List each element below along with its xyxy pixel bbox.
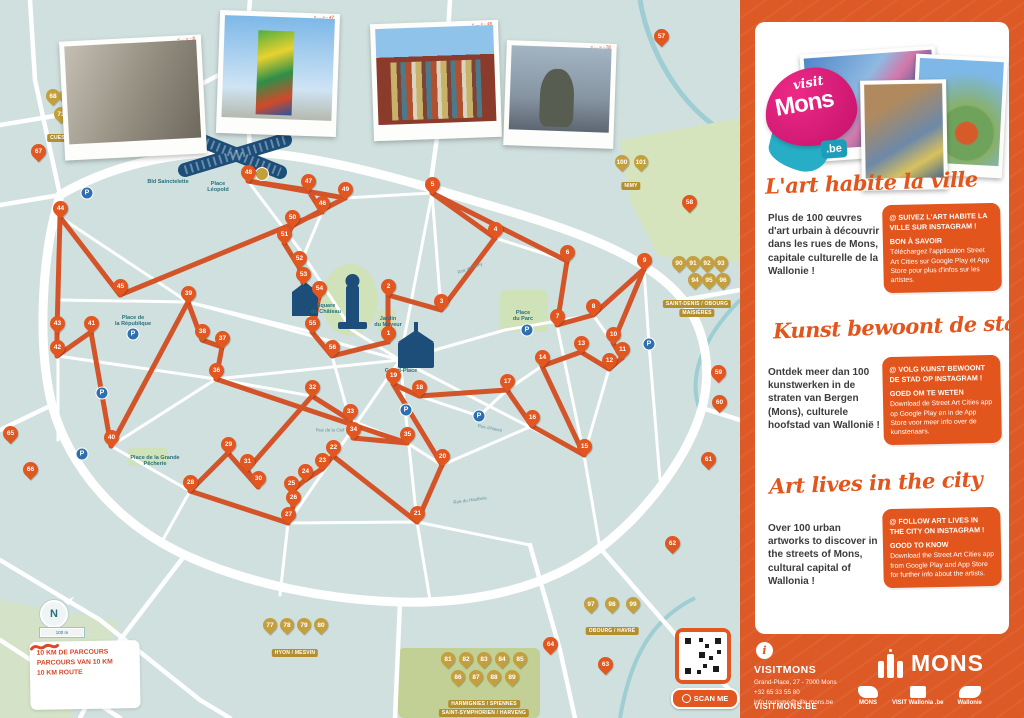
marker-number: 40	[104, 430, 119, 445]
mons-region-logo: MONS	[858, 686, 878, 707]
marker-number: 26	[286, 490, 301, 505]
marker-number: 6	[560, 245, 575, 260]
marker-number: 66	[23, 462, 38, 477]
marker-number: 87	[469, 670, 483, 684]
marker-number: 15	[577, 439, 592, 454]
map-photo-3: « ... » - 45	[370, 20, 502, 141]
compass-north-icon: N	[40, 600, 68, 628]
marker-number: 82	[459, 652, 473, 666]
marker-number: 3	[434, 294, 449, 309]
marker-number: 63	[598, 657, 613, 672]
marker-number: 38	[195, 324, 210, 339]
mons-city-logo: MONS	[878, 648, 984, 678]
marker-number: 55	[305, 316, 320, 331]
parking-icon: P	[81, 187, 94, 200]
marker-number: 44	[53, 201, 68, 216]
village-group-label: OBOURG / HAVRÉ	[586, 627, 639, 635]
marker-number: 17	[500, 374, 515, 389]
marker-number: 94	[688, 273, 702, 287]
footer-website[interactable]: VISITMONS.BE	[754, 702, 817, 711]
parking-icon: P	[473, 410, 486, 423]
marker-number: 49	[338, 182, 353, 197]
marker-number: 27	[281, 507, 296, 522]
marker-number: 2	[381, 279, 396, 294]
street-art-map-poster: « ... » - 6 « ... » - 47 « ... » - 45 « …	[0, 0, 1024, 718]
village-group-label: SAINT-DENIS / OBOURG	[663, 300, 731, 308]
marker-number: 62	[665, 536, 680, 551]
map-photo-4: « ... » - 78	[503, 40, 617, 149]
marker-number: 93	[714, 256, 728, 270]
marker-number: 21	[410, 506, 425, 521]
marker-number: 9	[637, 253, 652, 268]
village-group-label: NIMY	[621, 182, 640, 190]
marker-number: 13	[574, 336, 589, 351]
city-map: « ... » - 6 « ... » - 47 « ... » - 45 « …	[0, 0, 740, 718]
marker-number: 50	[285, 210, 300, 225]
marker-number: 48	[241, 165, 256, 180]
marker-number: 53	[296, 267, 311, 282]
marker-number: 54	[312, 281, 327, 296]
route-squiggle-icon	[29, 641, 59, 652]
marker-number: 79	[297, 618, 311, 632]
mural-photo-figure	[509, 45, 612, 132]
visitmons-logo: visit Mons .be	[759, 62, 867, 174]
instagram-line-nl: @ Volg kunst bewoont de stad op Instagra…	[889, 363, 993, 385]
info-icon: i	[756, 642, 773, 659]
marker-number: 95	[702, 273, 716, 287]
street-label: Rue de la Clef	[316, 428, 345, 433]
marker-number: 47	[301, 174, 316, 189]
mural-photo-books	[375, 25, 496, 125]
marker-number: 16	[525, 410, 540, 425]
village-group-label: HARMIGNIES / SPIENNES	[448, 700, 520, 708]
marker-number: 34	[346, 422, 361, 437]
visit-wallonia-logo: VISIT Wallonia .be	[892, 686, 943, 707]
marker-number: 39	[181, 286, 196, 301]
marker-number: 51	[277, 227, 292, 242]
instagram-line-fr: @ Suivez l'art habite la ville sur Insta…	[889, 211, 993, 233]
heading-en: Art lives in the city	[769, 466, 983, 498]
marker-number: 19	[386, 368, 401, 383]
marker-number: 30	[251, 471, 266, 486]
marker-number: 100	[615, 155, 629, 169]
marker-number: 37	[215, 331, 230, 346]
marker-number: 59	[711, 365, 726, 380]
map-photo-1: « ... » - 6	[59, 34, 207, 160]
body-en: Over 100 urban artworks to discover in t…	[768, 522, 880, 588]
scan-me-button[interactable]: SCAN ME	[671, 688, 739, 709]
village-group-label: HYON / MESVIN	[272, 649, 318, 657]
footer-address: Grand-Place, 27 - 7000 Mons	[754, 678, 837, 688]
logo-be-tag: .be	[820, 139, 847, 159]
marker-number: 58	[682, 195, 697, 210]
footer-phone: +32 65 33 55 80	[754, 688, 837, 698]
marker-number: 60	[712, 395, 727, 410]
marker-number: 1	[381, 326, 396, 341]
footer-brand: VISITMONS	[754, 664, 816, 676]
marker-number: 89	[505, 670, 519, 684]
marker-number: 81	[441, 652, 455, 666]
info-card: visit Mons .be L'art habite la ville Plu…	[755, 22, 1009, 634]
callout-fr: @ Suivez l'art habite la ville sur Insta…	[882, 203, 1002, 294]
marker-number: 23	[315, 453, 330, 468]
station-gold-badge	[255, 167, 269, 181]
village-group-label: SAINT-SYMPHORIEN / HARVENG	[439, 709, 529, 717]
marker-number: 14	[535, 350, 550, 365]
marker-number: 20	[435, 449, 450, 464]
photo-caption: « ... » - 6	[177, 36, 195, 42]
marker-number: 61	[701, 452, 716, 467]
marker-number: 35	[400, 427, 415, 442]
village-group-label: MAISIÈRES	[679, 309, 714, 317]
map-scale-bar: 100 m	[40, 628, 84, 637]
callout-en: @ Follow art lives in the city on Instag…	[882, 507, 1002, 588]
marker-number: 86	[451, 670, 465, 684]
marker-number: 80	[314, 618, 328, 632]
partner-logos: MONS VISIT Wallonia .be Wallonie	[858, 686, 982, 707]
parking-icon: P	[127, 328, 140, 341]
place-label: Square du Château	[311, 303, 341, 315]
parking-icon: P	[521, 324, 534, 337]
marker-number: 57	[654, 29, 669, 44]
marker-number: 52	[292, 251, 307, 266]
marker-number: 92	[700, 256, 714, 270]
marker-number: 7	[550, 309, 565, 324]
marker-number: 5	[425, 177, 440, 192]
marker-number: 12	[602, 353, 617, 368]
info-panel: visit Mons .be L'art habite la ville Plu…	[740, 0, 1024, 718]
marker-number: 96	[716, 273, 730, 287]
marker-number: 97	[584, 597, 598, 611]
instagram-line-en: @ Follow art lives in the city on Instag…	[889, 515, 993, 537]
marker-number: 10	[606, 327, 621, 342]
parking-icon: P	[76, 448, 89, 461]
parking-icon: P	[96, 387, 109, 400]
map-legend: 10 KM DE PARCOURS PARCOURS VAN 10 KM 10 …	[29, 640, 140, 710]
marker-number: 29	[221, 437, 236, 452]
mural-photo-tower	[221, 15, 334, 121]
marker-number: 18	[412, 380, 427, 395]
marker-number: 101	[634, 155, 648, 169]
marker-number: 28	[183, 475, 198, 490]
marker-number: 91	[686, 256, 700, 270]
callout-nl: @ Volg kunst bewoont de stad op Instagra…	[882, 355, 1002, 446]
marker-number: 90	[672, 256, 686, 270]
marker-number: 84	[495, 652, 509, 666]
marker-number: 64	[543, 637, 558, 652]
marker-number: 4	[488, 222, 503, 237]
marker-number: 65	[3, 426, 18, 441]
place-label: Place de la Grande Pêcherie	[130, 455, 179, 467]
marker-number: 42	[50, 340, 65, 355]
scan-me-label: SCAN ME	[694, 694, 729, 703]
marker-number: 45	[113, 279, 128, 294]
place-label: Place du Parc	[513, 310, 533, 322]
place-label: Place de la République	[115, 315, 151, 327]
marker-number: 67	[31, 144, 46, 159]
marker-number: 43	[50, 316, 65, 331]
marker-number: 56	[325, 340, 340, 355]
marker-number: 98	[605, 597, 619, 611]
marker-number: 8	[586, 299, 601, 314]
marker-number: 85	[513, 652, 527, 666]
wallonia-tourism-logo: Wallonie	[957, 686, 981, 707]
marker-number: 25	[284, 476, 299, 491]
marker-number: 31	[240, 454, 255, 469]
marker-number: 78	[280, 618, 294, 632]
place-label: Bld Sainctelette	[147, 179, 188, 185]
heading-nl: Kunst bewoont de stad	[773, 310, 1009, 344]
marker-number: 41	[84, 316, 99, 331]
panel-footer: i VISITMONS Grand-Place, 27 - 7000 Mons …	[740, 640, 1024, 718]
parking-icon: P	[400, 404, 413, 417]
camera-icon	[682, 694, 691, 703]
body-nl: Ontdek meer dan 100 kunstwerken in de st…	[768, 366, 880, 432]
marker-number: 32	[305, 380, 320, 395]
qr-code[interactable]	[675, 628, 731, 684]
marker-number: 46	[315, 196, 330, 211]
parking-icon: P	[643, 338, 656, 351]
marker-number: 36	[209, 363, 224, 378]
legend-line-en: 10 KM ROUTE	[37, 667, 133, 679]
map-photo-2: « ... » - 47	[216, 10, 340, 137]
body-fr: Plus de 100 œuvres d'art urbain à découv…	[768, 212, 880, 278]
marker-number: 88	[487, 670, 501, 684]
marker-number: 24	[298, 464, 313, 479]
marker-number: 99	[626, 597, 640, 611]
marker-number: 33	[343, 404, 358, 419]
marker-number: 83	[477, 652, 491, 666]
marker-number: 77	[263, 618, 277, 632]
place-label: Place Léopold	[207, 181, 228, 193]
mural-photo-grey	[64, 40, 201, 145]
belfry-logo-icon	[878, 648, 904, 678]
